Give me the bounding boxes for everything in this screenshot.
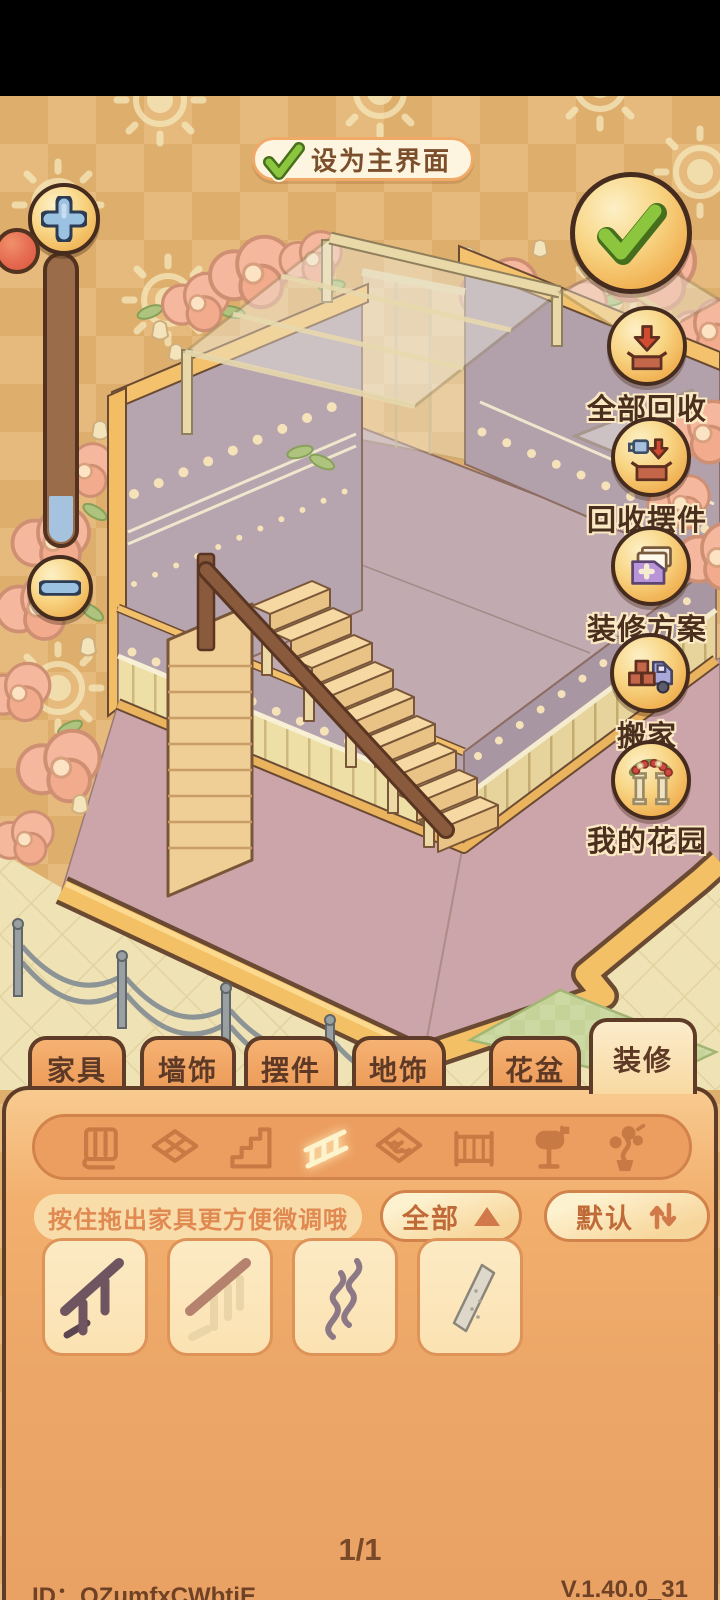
tab-flower-pots[interactable]: 花盆 <box>489 1036 581 1092</box>
zoom-slider-fill <box>49 496 73 542</box>
tab-ornaments-label: 摆件 <box>261 1049 321 1089</box>
page-indicator: 1/1 <box>6 1532 714 1568</box>
sort-default-dropdown[interactable]: 默认 <box>544 1190 710 1242</box>
player-id: ID：QZumfxCWbtjE <box>32 1576 256 1600</box>
tab-wall-decor[interactable]: 墙饰 <box>140 1036 236 1092</box>
confirm-button[interactable] <box>570 172 692 294</box>
cards-plus-icon <box>625 540 677 592</box>
tab-furniture[interactable]: 家具 <box>28 1036 126 1092</box>
minus-icon <box>39 567 81 609</box>
category-railing-icon-selected[interactable] <box>297 1121 353 1173</box>
tab-floor-decor[interactable]: 地饰 <box>352 1036 446 1092</box>
category-fence-icon[interactable] <box>446 1121 502 1173</box>
railing-dark-wood-icon <box>53 1249 137 1345</box>
recycle-ornaments-button[interactable] <box>611 417 691 497</box>
move-house-button[interactable] <box>610 633 690 713</box>
decoration-panel: 按住拖出家具更方便微调哦 全部 默认 <box>2 1086 718 1600</box>
tab-furniture-label: 家具 <box>47 1049 107 1089</box>
set-main-screen-label: 设为主界面 <box>311 141 451 178</box>
flower-arch-columns-icon <box>625 754 677 806</box>
box-arrow-down-icon <box>621 320 673 372</box>
green-check-icon <box>257 134 309 186</box>
item-card-railing-dark[interactable] <box>42 1238 148 1356</box>
tab-floor-decor-label: 地饰 <box>369 1049 429 1089</box>
category-plant-decor-icon[interactable] <box>596 1121 652 1173</box>
decor-plans-button[interactable] <box>611 526 691 606</box>
set-main-screen-toggle[interactable]: 设为主界面 <box>252 137 474 181</box>
recycle-all-button[interactable] <box>607 306 687 386</box>
confirm-check-icon <box>589 191 673 275</box>
category-bar <box>32 1114 692 1180</box>
category-mailbox-icon[interactable] <box>521 1121 577 1173</box>
category-wallpaper-icon[interactable] <box>72 1121 128 1173</box>
my-garden-button[interactable] <box>611 740 691 820</box>
my-garden-label: 我的花园 <box>559 818 720 860</box>
game-screen: 设为主界面 全部回收 回收摆件 装修方案 <box>0 0 720 1600</box>
item-card-railing-light[interactable] <box>167 1238 273 1356</box>
tab-decoration-label: 装修 <box>613 1039 673 1079</box>
railing-glass-panel-icon <box>428 1249 512 1345</box>
category-roof-tile-icon[interactable] <box>371 1121 427 1173</box>
zoom-out-button[interactable] <box>27 555 93 621</box>
footer: ID：QZumfxCWbtjE V.1.40.0_31 <box>32 1576 688 1600</box>
boxes-truck-icon <box>624 647 676 699</box>
tab-flower-pots-label: 花盆 <box>505 1049 565 1089</box>
hint-banner: 按住拖出家具更方便微调哦 <box>34 1194 362 1240</box>
sort-order-icon <box>648 1200 678 1232</box>
filter-all-label: 全部 <box>402 1197 460 1236</box>
zoom-slider[interactable] <box>43 252 79 548</box>
sort-default-label: 默认 <box>576 1197 634 1236</box>
railing-iron-scroll-icon <box>303 1249 387 1345</box>
category-stairs-icon[interactable] <box>222 1121 278 1173</box>
status-bar <box>0 0 720 96</box>
cup-box-arrow-down-icon <box>625 431 677 483</box>
tab-decoration-active[interactable]: 装修 <box>589 1018 697 1094</box>
item-card-railing-glass[interactable] <box>417 1238 523 1356</box>
railing-light-wood-icon <box>178 1249 262 1345</box>
tab-wall-decor-label: 墙饰 <box>158 1049 218 1089</box>
chevron-up-icon <box>474 1207 500 1226</box>
item-card-railing-scroll[interactable] <box>292 1238 398 1356</box>
filter-all-dropdown[interactable]: 全部 <box>380 1190 522 1242</box>
category-floor-tile-icon[interactable] <box>147 1121 203 1173</box>
hint-text: 按住拖出家具更方便微调哦 <box>48 1200 348 1235</box>
version-label: V.1.40.0_31 <box>561 1576 688 1600</box>
plus-icon <box>41 196 87 242</box>
tab-ornaments[interactable]: 摆件 <box>244 1036 338 1092</box>
